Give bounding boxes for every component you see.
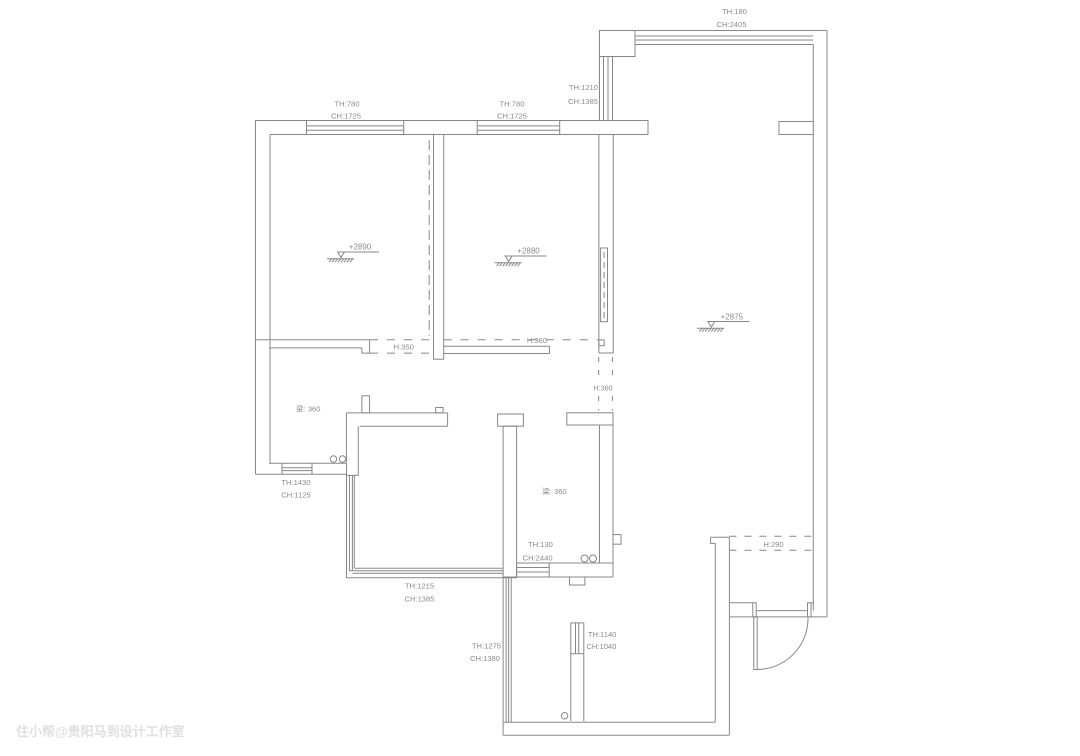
svg-text:TH:1215: TH:1215 <box>405 582 434 591</box>
svg-text:+2880: +2880 <box>517 247 540 256</box>
svg-text:+2890: +2890 <box>349 243 372 252</box>
svg-text:H:360: H:360 <box>527 336 547 345</box>
svg-text:梁: 360: 梁: 360 <box>542 487 566 496</box>
svg-text:CH:1385: CH:1385 <box>568 97 598 106</box>
svg-text:TH:1140: TH:1140 <box>588 630 617 639</box>
svg-text:CH:1385: CH:1385 <box>405 594 435 603</box>
svg-text:CH:2405: CH:2405 <box>717 20 747 29</box>
svg-text:TH:780: TH:780 <box>335 100 360 109</box>
svg-text:CH:1725: CH:1725 <box>497 112 527 121</box>
svg-text:H:290: H:290 <box>763 540 783 549</box>
svg-text:H:350: H:350 <box>394 342 414 351</box>
svg-text:TH:1210: TH:1210 <box>569 83 598 92</box>
svg-text:TH:130: TH:130 <box>528 540 553 549</box>
svg-text:CH:1040: CH:1040 <box>586 642 616 651</box>
svg-text:CH:1725: CH:1725 <box>331 112 361 121</box>
svg-text:+2875: +2875 <box>721 313 744 322</box>
svg-text:TH:1430: TH:1430 <box>281 478 310 487</box>
svg-text:CH:2440: CH:2440 <box>523 553 553 562</box>
svg-text:TH:180: TH:180 <box>722 7 747 16</box>
svg-text:梁: 360: 梁: 360 <box>296 405 320 414</box>
svg-text:CH:1125: CH:1125 <box>281 491 310 500</box>
svg-text:TH:1275: TH:1275 <box>472 642 501 651</box>
svg-text:H:360: H:360 <box>593 383 612 392</box>
svg-text:TH:780: TH:780 <box>500 100 525 109</box>
svg-text:CH:1380: CH:1380 <box>470 654 500 663</box>
